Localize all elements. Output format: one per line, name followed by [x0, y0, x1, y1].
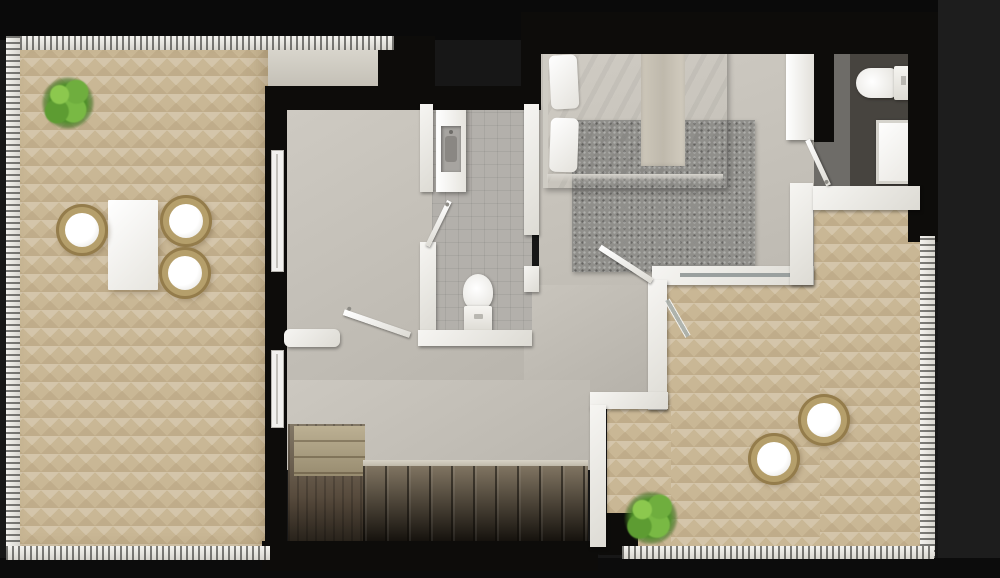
outdoor-chair — [748, 433, 800, 485]
pillow — [549, 54, 580, 109]
toilet-main — [460, 272, 496, 334]
wall-bath-bottom — [418, 330, 532, 346]
washbasin-vanity — [436, 106, 466, 192]
railing-right — [920, 236, 935, 558]
outdoor-chair — [160, 195, 212, 247]
floor-plan-render — [0, 0, 1000, 578]
flush-button — [474, 314, 483, 319]
toilet-bowl — [463, 274, 493, 310]
plant-2 — [622, 490, 680, 546]
wall-step-vertical-1 — [648, 280, 667, 410]
wall-hall-stub — [284, 329, 340, 347]
wall-bedroom-left-stub — [524, 266, 539, 292]
railing-bottom-left — [6, 546, 270, 560]
wall-interior-top — [265, 86, 532, 110]
stair-landing-steps — [294, 426, 365, 476]
plant-1 — [40, 75, 96, 131]
outdoor-chair — [798, 394, 850, 446]
wall-bottom — [262, 541, 598, 571]
toilet-bowl — [856, 68, 896, 98]
sliding-glass-track — [680, 273, 796, 277]
wall-step-vertical-2 — [590, 405, 606, 547]
railing-bottom-right — [622, 546, 934, 559]
door-handle — [445, 202, 450, 207]
tap-icon — [449, 130, 453, 134]
wall-ensuite-left — [814, 12, 834, 142]
door-handle — [824, 179, 829, 184]
wall-bedroom-right — [790, 183, 813, 285]
window-2 — [271, 350, 284, 428]
window-1 — [271, 150, 284, 272]
stair-flight — [363, 466, 588, 545]
flush-button — [901, 76, 906, 85]
background-right — [938, 0, 1000, 578]
double-bed — [543, 46, 727, 188]
outdoor-dining-table — [108, 200, 158, 290]
wall-bedroom-left — [524, 104, 539, 235]
wardrobe — [786, 40, 814, 140]
terrace-right-floor-a — [814, 208, 920, 550]
basin-bowl — [445, 136, 457, 162]
terrace-top-strip — [268, 50, 392, 90]
railing-top — [8, 36, 394, 50]
toilet-tank — [464, 306, 492, 332]
railing-left — [6, 36, 20, 560]
wall-bedroom-top — [521, 12, 935, 54]
bed-throw-blanket — [641, 48, 685, 166]
wall-bedroom-left-upper — [521, 42, 541, 110]
outdoor-chair — [159, 247, 211, 299]
outdoor-chair — [56, 204, 108, 256]
duvet-fold — [547, 174, 723, 182]
wall-ensuite-bottom — [813, 186, 920, 210]
wall-bath-stub-lower — [420, 242, 436, 334]
bed-headboard — [543, 46, 548, 188]
wall-bath-stub-upper — [420, 104, 433, 192]
pillow — [549, 118, 579, 173]
door-handle — [347, 306, 352, 311]
